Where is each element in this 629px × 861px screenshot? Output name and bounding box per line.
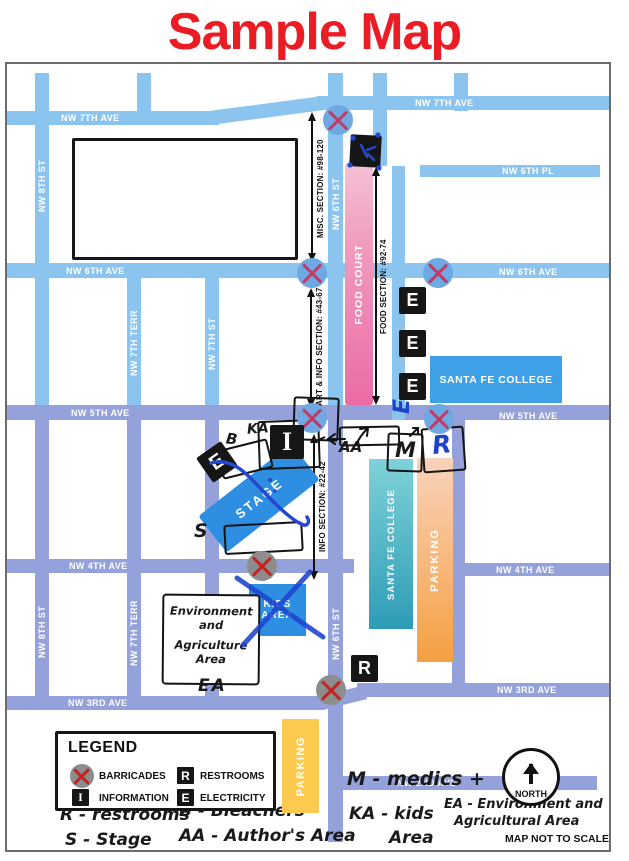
hw-e-rotated: E — [390, 399, 415, 414]
santa-fe-college-label: SANTA FE COLLEGE — [440, 374, 553, 386]
street-nw-3rd-ave-right — [357, 683, 609, 697]
misc-section-arrow — [311, 117, 313, 257]
page: Sample Map NW 7TH AVE NW 7TH AVE NW 6TH … — [0, 0, 629, 861]
street-nw-4th-ave-left — [7, 559, 354, 573]
parking-south-label: PARKING — [295, 736, 307, 796]
art-info-section-label: ART & INFO SECTION: #43-67 — [315, 290, 324, 406]
barricade-icon-6th-ave-west — [297, 258, 327, 288]
scale-note: MAP NOT TO SCALE — [505, 833, 609, 845]
electricity-marker-icon-2: E — [399, 330, 426, 357]
parking-strip-south: PARKING — [282, 719, 319, 813]
stage-label: STAGE — [232, 475, 286, 521]
label-nw-6th-ave-left: NW 6TH AVE — [66, 266, 125, 276]
label-nw-7th-ave-left: NW 7TH AVE — [61, 113, 120, 123]
legend-restrooms-label: RESTROOMS — [200, 771, 264, 782]
env-box-line-2: and — [164, 618, 258, 633]
kids-area-label-2: AREA — [261, 610, 293, 621]
label-nw-4th-ave-right: NW 4TH AVE — [496, 565, 555, 575]
legend: LEGEND BARRICADES I INFORMATION R RESTRO… — [55, 731, 276, 811]
label-nw-7th-st: NW 7TH ST — [205, 314, 219, 374]
label-nw-4th-ave-left: NW 4TH AVE — [69, 561, 128, 571]
legend-electricity-icon: E — [177, 789, 194, 806]
santa-fe-college-strip: SANTA FE COLLEGE — [369, 459, 413, 629]
electricity-marker-icon-3: E — [399, 373, 426, 400]
vendor-block-rect — [72, 138, 298, 260]
legend-restrooms-icon: R — [177, 767, 194, 784]
north-compass: NORTH — [502, 748, 560, 806]
label-nw-6th-pl: NW 6TH PL — [502, 166, 554, 176]
note-kids-2: Area — [389, 828, 434, 848]
santa-fe-college-box: SANTA FE COLLEGE — [430, 356, 562, 403]
env-box-line-3: Agriculture — [164, 638, 258, 653]
barricade-icon-7th-ave — [323, 105, 353, 135]
legend-barricades-label: BARRICADES — [99, 771, 166, 782]
restrooms-marker-icon: R — [351, 655, 378, 682]
parking-strip-east: PARKING — [417, 458, 453, 662]
label-nw-7th-ave-right: NW 7TH AVE — [415, 98, 474, 108]
north-label: NORTH — [505, 789, 557, 799]
environment-agriculture-box: Environment and Agriculture Area — [162, 594, 261, 686]
food-section-arrow — [375, 172, 377, 400]
label-nw-7th-terr-lower: NW 7TH TERR — [127, 597, 141, 669]
label-nw-6th-st-lower: NW 6TH ST — [329, 601, 343, 667]
note-env-2: Agricultural Area — [454, 814, 579, 829]
barricade-icon-6th-ave-east — [423, 258, 453, 288]
label-nw-6th-ave-right: NW 6TH AVE — [499, 267, 558, 277]
legend-information-icon: I — [72, 789, 89, 806]
env-box-line-1: Environment — [164, 604, 258, 619]
street-nw-8th-st-upper — [35, 73, 49, 405]
label-nw-8th-st-lower: NW 8TH ST — [35, 601, 49, 663]
label-nw-8th-st-upper: NW 8TH ST — [35, 156, 49, 216]
legend-electricity-label: ELECTRICITY — [200, 793, 266, 804]
santa-fe-college-strip-label: SANTA FE COLLEGE — [386, 489, 397, 600]
label-nw-7th-terr-upper: NW 7TH TERR — [127, 307, 141, 379]
electricity-marker-icon-1: E — [399, 287, 426, 314]
note-authors-area: AA - Author's Area — [179, 826, 356, 846]
kids-area-label-1: KIDS — [264, 599, 292, 610]
barricade-icon-4th-ave — [247, 551, 277, 581]
note-stage: S - Stage — [65, 830, 152, 850]
hw-aa: AA — [339, 438, 362, 456]
label-nw-6th-st-upper: NW 6TH ST — [329, 176, 343, 232]
hw-ea: EA — [198, 676, 227, 696]
hw-ka: KA — [246, 420, 269, 437]
handdrawn-box-bleacher-2 — [223, 521, 303, 555]
label-nw-3rd-ave-left: NW 3RD AVE — [68, 698, 128, 708]
note-medics: M - medics + — [347, 768, 485, 790]
label-nw-5th-ave-right: NW 5TH AVE — [499, 411, 558, 421]
page-title: Sample Map — [0, 2, 629, 62]
food-court-label: FOOD COURT — [352, 244, 366, 325]
label-nw-3rd-ave-right: NW 3RD AVE — [497, 685, 557, 695]
information-marker-icon: I — [270, 425, 304, 459]
hw-r-restroom: R — [431, 429, 453, 460]
legend-title: LEGEND — [68, 739, 138, 757]
note-kids-1: KA - kids — [349, 804, 434, 824]
art-info-section-arrow — [310, 293, 312, 403]
legend-barricade-icon — [70, 764, 94, 788]
food-court-area: FOOD COURT — [345, 163, 373, 405]
misc-section-label: MISC. SECTION: #98-120 — [316, 119, 325, 259]
barricade-icon-3rd-ave — [316, 675, 346, 705]
street-stub-above-7th-ave — [137, 73, 151, 118]
map-canvas: NW 7TH AVE NW 7TH AVE NW 6TH PL NW 6TH A… — [5, 62, 611, 852]
hw-b: B — [225, 429, 238, 448]
parking-east-label: PARKING — [429, 528, 441, 592]
hw-s: S — [194, 520, 208, 542]
annotated-marker-icon — [349, 134, 382, 168]
env-box-line-4: Area — [164, 652, 258, 667]
street-nw-3rd-ave-left — [7, 696, 325, 710]
legend-information-label: INFORMATION — [99, 793, 169, 804]
food-section-label: FOOD SECTION: #92-74 — [379, 174, 388, 399]
street-nw-8th-st-lower — [35, 405, 49, 710]
label-nw-5th-ave-left: NW 5TH AVE — [71, 408, 130, 418]
hw-m-medics: M — [395, 438, 416, 462]
